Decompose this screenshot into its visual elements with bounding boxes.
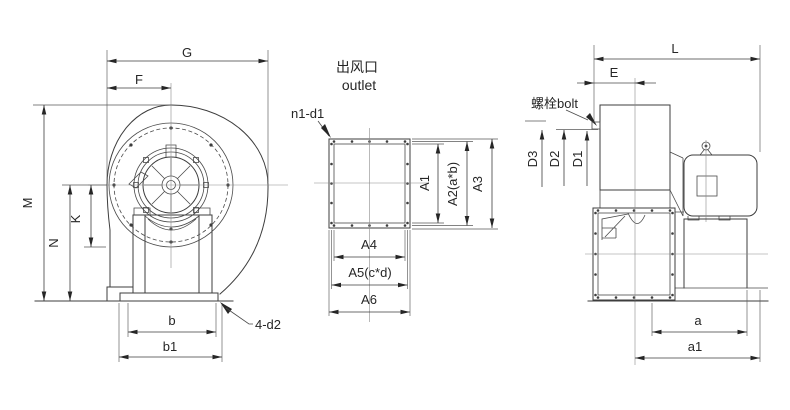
side-flange-inner-detail bbox=[602, 213, 645, 240]
bolt-detail bbox=[592, 122, 600, 129]
dim-label-M: M bbox=[20, 198, 35, 209]
motor-stand bbox=[684, 219, 747, 288]
dim-label-N: N bbox=[46, 238, 61, 247]
outlet-view: 出风口 outlet n1-d1 A1 A2(a*b) A3 A4 A5(c*d… bbox=[291, 59, 498, 322]
side-casing-edge bbox=[670, 152, 683, 216]
dim-label-A2: A2(a*b) bbox=[445, 162, 460, 206]
dim-label-A6: A6 bbox=[361, 292, 377, 307]
leader-line-bolt bbox=[566, 110, 588, 120]
dim-label-E: E bbox=[610, 65, 619, 80]
dim-label-a1: a1 bbox=[688, 339, 702, 354]
dim-label-G: G bbox=[182, 45, 192, 60]
dim-label-A3: A3 bbox=[470, 176, 485, 192]
volute-outline bbox=[107, 105, 268, 294]
dim-label-K: K bbox=[68, 214, 83, 223]
leader-line-4-d2 bbox=[226, 308, 253, 324]
outlet-title-cn: 出风口 bbox=[336, 59, 378, 75]
dim-label-A5: A5(c*d) bbox=[348, 265, 391, 280]
leader-label-4-d2: 4-d2 bbox=[255, 317, 281, 332]
leader-arrow-n1-d1 bbox=[321, 124, 331, 138]
dim-label-A4: A4 bbox=[361, 237, 377, 252]
side-view: L E 螺栓bolt D3 D2 D1 a a1 bbox=[525, 41, 768, 365]
dim-label-b: b bbox=[168, 313, 175, 328]
dim-label-D2: D2 bbox=[547, 151, 562, 168]
front-extension-lines bbox=[33, 50, 268, 362]
leader-label-bolt: 螺栓bolt bbox=[531, 96, 578, 111]
drawing-canvas: G F M N K b b1 4-d2 出风口 outlet n1-d1 bbox=[0, 0, 790, 410]
dim-label-D3: D3 bbox=[525, 151, 540, 168]
dim-label-b1: b1 bbox=[163, 339, 177, 354]
dim-label-D1: D1 bbox=[570, 151, 585, 168]
front-view: G F M N K b b1 4-d2 bbox=[20, 45, 288, 362]
fan-dimension-drawing: G F M N K b b1 4-d2 出风口 outlet n1-d1 bbox=[0, 0, 790, 410]
dim-label-A1: A1 bbox=[417, 175, 432, 191]
outlet-title-en: outlet bbox=[342, 77, 376, 93]
dim-label-L: L bbox=[671, 41, 678, 56]
leader-label-n1-d1: n1-d1 bbox=[291, 106, 324, 121]
dim-arrow-E-right bbox=[635, 81, 645, 86]
motor-terminal-box bbox=[697, 176, 717, 196]
motor-body bbox=[684, 155, 757, 216]
base-plate bbox=[120, 293, 218, 301]
dim-arrow-E-left bbox=[585, 81, 595, 86]
dim-label-a: a bbox=[694, 313, 702, 328]
dim-label-F: F bbox=[135, 72, 143, 87]
